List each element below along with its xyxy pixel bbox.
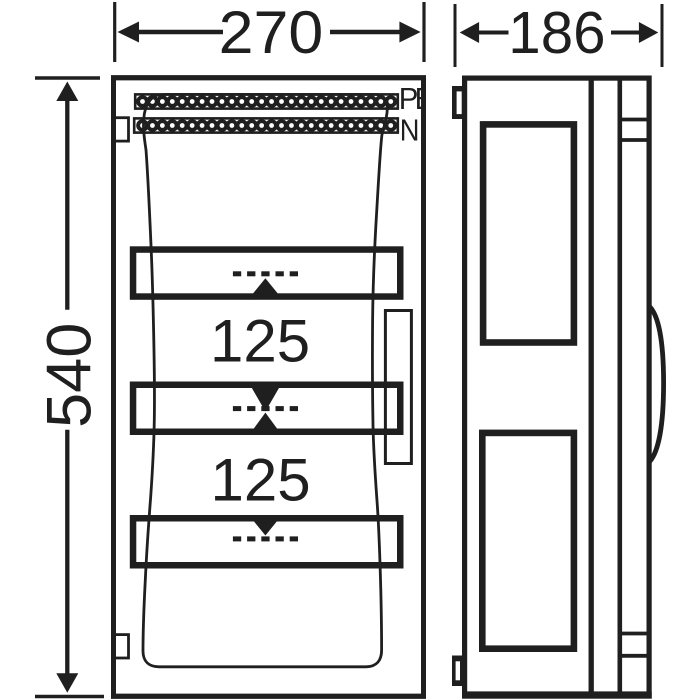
svg-text:125: 125 <box>210 308 310 375</box>
svg-text:125: 125 <box>211 447 311 514</box>
svg-text:186: 186 <box>508 0 605 66</box>
svg-text:N: N <box>400 114 420 148</box>
svg-text:540: 540 <box>35 323 105 428</box>
svg-text:270: 270 <box>219 0 324 67</box>
